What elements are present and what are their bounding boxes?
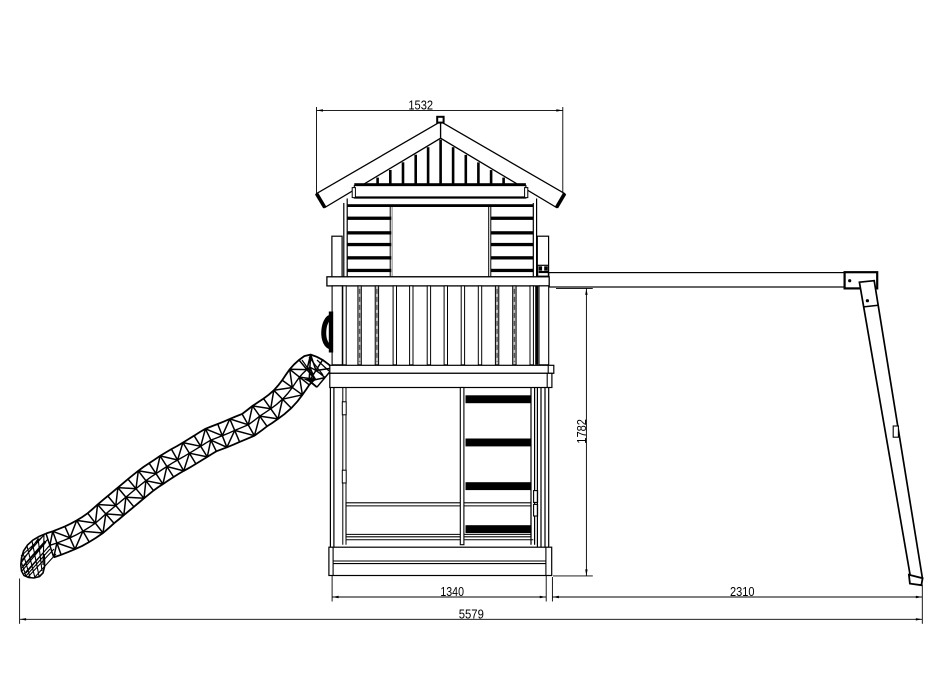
svg-text:2310: 2310 (730, 585, 755, 599)
svg-text:1532: 1532 (408, 98, 433, 112)
svg-text:1782: 1782 (575, 419, 589, 444)
svg-text:1340: 1340 (440, 585, 464, 599)
svg-text:5579: 5579 (459, 607, 484, 621)
